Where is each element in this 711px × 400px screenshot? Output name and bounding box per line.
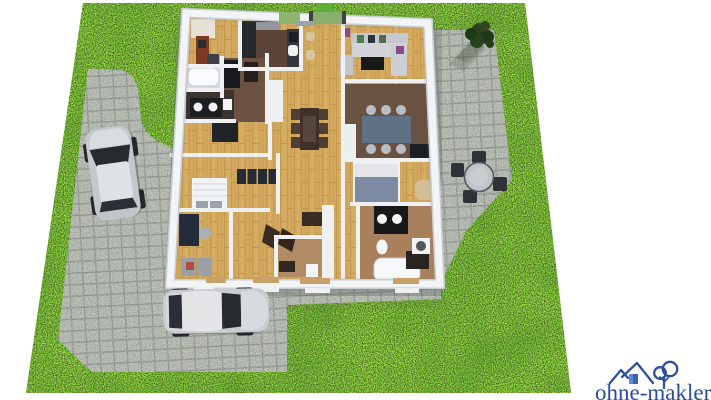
svg-text:ohne-makler: ohne-makler — [595, 380, 711, 400]
